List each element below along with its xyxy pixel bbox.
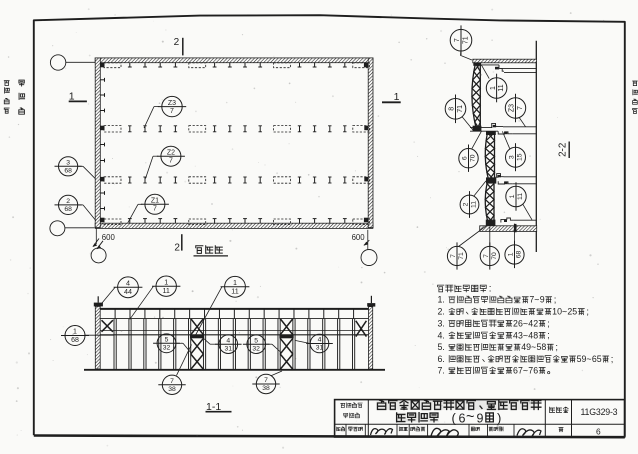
- svg-text:8: 8: [449, 107, 456, 111]
- svg-text:8: 8: [541, 342, 546, 352]
- svg-text:44: 44: [124, 287, 132, 296]
- svg-text:5: 5: [572, 307, 577, 317]
- svg-text:6: 6: [459, 411, 466, 425]
- svg-text:600: 600: [102, 233, 116, 242]
- svg-text:71: 71: [457, 105, 464, 113]
- svg-text:~: ~: [466, 409, 474, 425]
- svg-text:7: 7: [517, 106, 524, 110]
- svg-text:;: ;: [547, 330, 550, 340]
- svg-text:;: ;: [586, 306, 589, 316]
- svg-text:7: 7: [170, 378, 174, 385]
- svg-text:68: 68: [64, 206, 72, 213]
- svg-text:~: ~: [523, 365, 528, 375]
- svg-text:11: 11: [498, 84, 505, 91]
- svg-text:68: 68: [71, 337, 79, 344]
- svg-text:2: 2: [533, 318, 538, 328]
- svg-text:31: 31: [316, 345, 324, 352]
- svg-text:7: 7: [450, 254, 457, 258]
- svg-text:~: ~: [523, 318, 528, 328]
- svg-text:1: 1: [509, 194, 516, 198]
- svg-text:.: .: [442, 342, 444, 352]
- svg-text:68: 68: [64, 168, 72, 175]
- svg-text::: :: [489, 284, 492, 295]
- svg-text:11: 11: [162, 286, 169, 295]
- svg-text:7: 7: [153, 206, 157, 213]
- svg-text:5: 5: [165, 337, 169, 344]
- svg-text:2-2: 2-2: [558, 143, 569, 157]
- svg-text:7: 7: [264, 377, 268, 384]
- svg-text:2: 2: [174, 37, 180, 48]
- svg-text:.: .: [442, 330, 444, 340]
- svg-text:6: 6: [533, 365, 538, 375]
- svg-text:.: .: [442, 307, 444, 317]
- svg-text:70: 70: [470, 154, 477, 162]
- svg-text:.: .: [442, 365, 444, 375]
- svg-text:15: 15: [517, 153, 524, 161]
- svg-text:.: .: [442, 295, 444, 305]
- svg-text:): ): [497, 410, 501, 425]
- svg-text:5: 5: [254, 337, 258, 344]
- svg-text:32: 32: [252, 345, 260, 352]
- svg-text:71: 71: [462, 36, 469, 44]
- svg-text:3: 3: [509, 155, 516, 159]
- svg-text:.: .: [442, 354, 444, 364]
- svg-text:7: 7: [483, 254, 490, 258]
- svg-text:6: 6: [596, 427, 601, 437]
- svg-text:~: ~: [586, 354, 591, 364]
- svg-text:Z1: Z1: [151, 198, 159, 205]
- svg-text:9: 9: [540, 295, 545, 305]
- svg-text:Z2: Z2: [167, 149, 175, 156]
- svg-text:;: ;: [611, 354, 614, 364]
- svg-text:68: 68: [516, 251, 523, 259]
- svg-text:11: 11: [517, 193, 524, 200]
- svg-text:4: 4: [226, 337, 230, 344]
- svg-text:11: 11: [471, 201, 478, 208]
- svg-text:5: 5: [597, 354, 602, 364]
- svg-text:6: 6: [462, 156, 469, 160]
- svg-text:31: 31: [225, 345, 233, 352]
- svg-text:7: 7: [169, 158, 173, 165]
- svg-text:2: 2: [66, 198, 70, 205]
- svg-text:8: 8: [533, 330, 538, 340]
- svg-text:3: 3: [66, 160, 70, 167]
- svg-text:Z3: Z3: [509, 104, 516, 112]
- svg-text:4: 4: [318, 337, 322, 344]
- svg-text:(: (: [452, 410, 457, 425]
- svg-text:.: .: [442, 318, 444, 328]
- svg-text:2: 2: [463, 202, 470, 206]
- svg-text:1: 1: [394, 91, 400, 103]
- svg-text:71: 71: [458, 252, 465, 260]
- svg-text:70: 70: [491, 252, 498, 260]
- svg-text:Z3: Z3: [168, 100, 176, 107]
- svg-text:~: ~: [534, 295, 539, 305]
- svg-text:;: ;: [555, 342, 558, 352]
- svg-text:1: 1: [490, 86, 497, 90]
- svg-text:11: 11: [231, 286, 238, 295]
- svg-text:~: ~: [531, 342, 536, 352]
- svg-text:7: 7: [454, 38, 461, 42]
- svg-text:;: ;: [554, 295, 557, 305]
- svg-text:1: 1: [508, 252, 515, 256]
- svg-text:9: 9: [477, 411, 484, 425]
- svg-text:11G329-3: 11G329-3: [581, 407, 618, 417]
- svg-text:;: ;: [547, 318, 550, 328]
- svg-text:7: 7: [170, 108, 174, 115]
- svg-text:38: 38: [168, 386, 176, 393]
- svg-text:~: ~: [523, 330, 528, 340]
- svg-text:~: ~: [562, 307, 567, 317]
- svg-text:2: 2: [174, 243, 180, 254]
- svg-text:32: 32: [163, 345, 171, 352]
- svg-text:600: 600: [352, 233, 366, 242]
- svg-text:38: 38: [262, 385, 270, 392]
